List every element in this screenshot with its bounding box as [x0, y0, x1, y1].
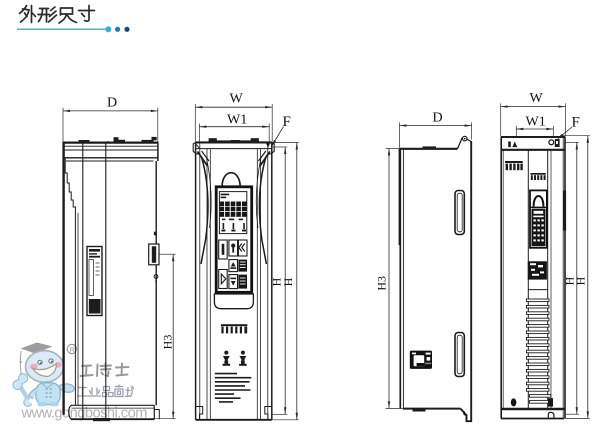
svg-text:D: D — [433, 111, 443, 126]
svg-text:H3: H3 — [161, 335, 175, 350]
svg-text:W1: W1 — [526, 115, 546, 130]
svg-text:H: H — [281, 277, 295, 286]
svg-text:R: R — [70, 347, 75, 354]
svg-text:H: H — [573, 276, 587, 285]
svg-text:F: F — [572, 115, 580, 131]
svg-text:W: W — [230, 92, 244, 107]
svg-text:W: W — [530, 91, 544, 106]
svg-text:W1: W1 — [227, 113, 247, 128]
svg-text:D: D — [107, 96, 117, 111]
svg-text:H3: H3 — [375, 276, 389, 291]
svg-text:F: F — [283, 114, 291, 130]
